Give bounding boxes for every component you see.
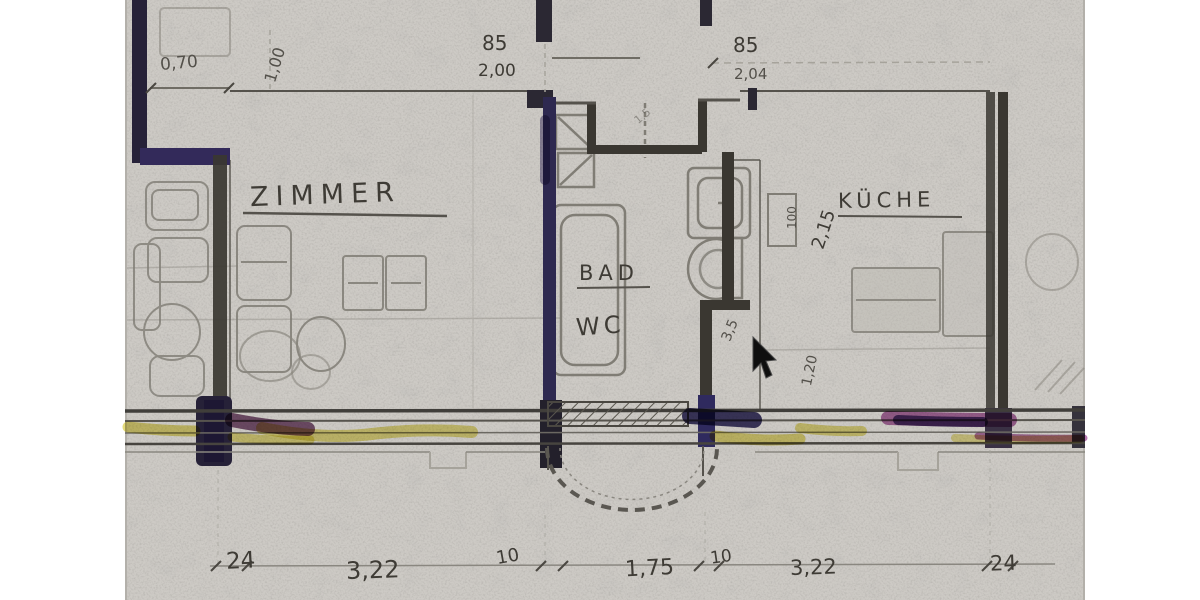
dim-bottom-0: 24 bbox=[225, 547, 256, 574]
dim-bottom-1: 3,22 bbox=[346, 555, 400, 585]
room-label-wc: WC bbox=[575, 310, 625, 341]
floorplan-scan: ZIMMER BAD WC KÜCHE 0,70 1,00 85 2,00 85… bbox=[0, 0, 1200, 600]
screenshot-root: ZIMMER BAD WC KÜCHE 0,70 1,00 85 2,00 85… bbox=[0, 0, 1200, 600]
dim-bottom-2: 10 bbox=[495, 544, 521, 569]
dim-sink: 100 bbox=[785, 206, 799, 229]
room-label-bad: BAD bbox=[579, 261, 639, 285]
dim-bottom-3: 1,75 bbox=[624, 555, 674, 583]
dim-top-left-w: 0,70 bbox=[159, 52, 198, 75]
dim-top-right-a: 85 bbox=[733, 33, 758, 57]
dim-bottom-5: 3,22 bbox=[790, 554, 838, 580]
dim-bottom-4: 10 bbox=[709, 546, 733, 569]
room-label-zimmer: ZIMMER bbox=[249, 177, 401, 213]
room-label-kueche: KÜCHE bbox=[838, 186, 936, 213]
dim-top-mid-b: 2,00 bbox=[478, 61, 516, 81]
dim-top-mid-a: 85 bbox=[482, 31, 507, 55]
dim-top-right-b: 2,04 bbox=[734, 65, 767, 83]
dim-bottom-6: 24 bbox=[990, 551, 1018, 576]
